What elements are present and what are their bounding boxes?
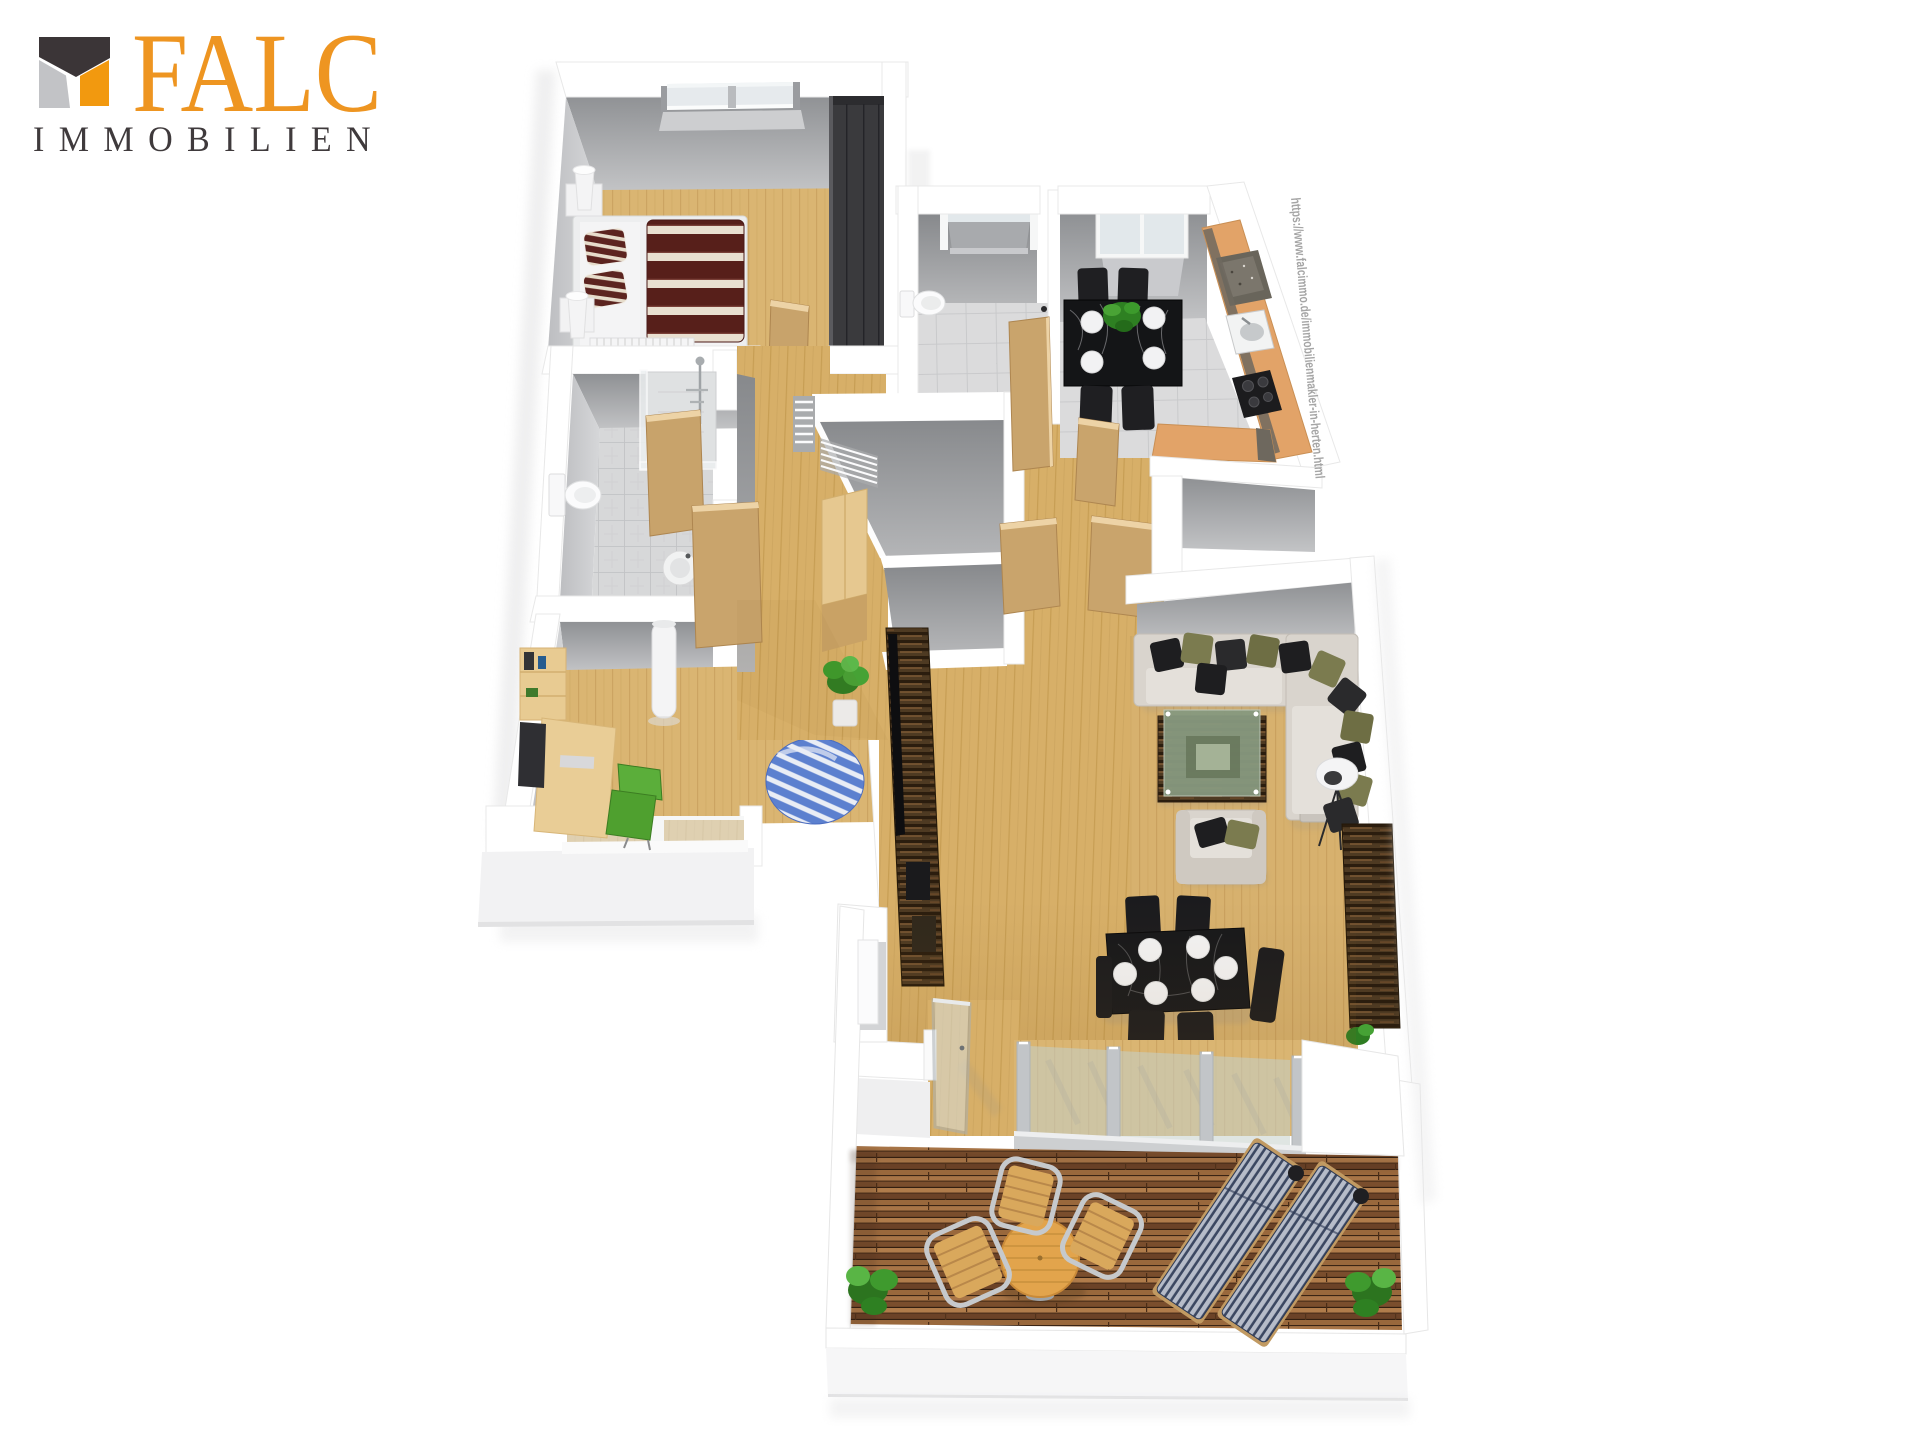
- svg-text:IMMOBILIEN: IMMOBILIEN: [33, 119, 385, 159]
- svg-text:FALC: FALC: [132, 11, 382, 136]
